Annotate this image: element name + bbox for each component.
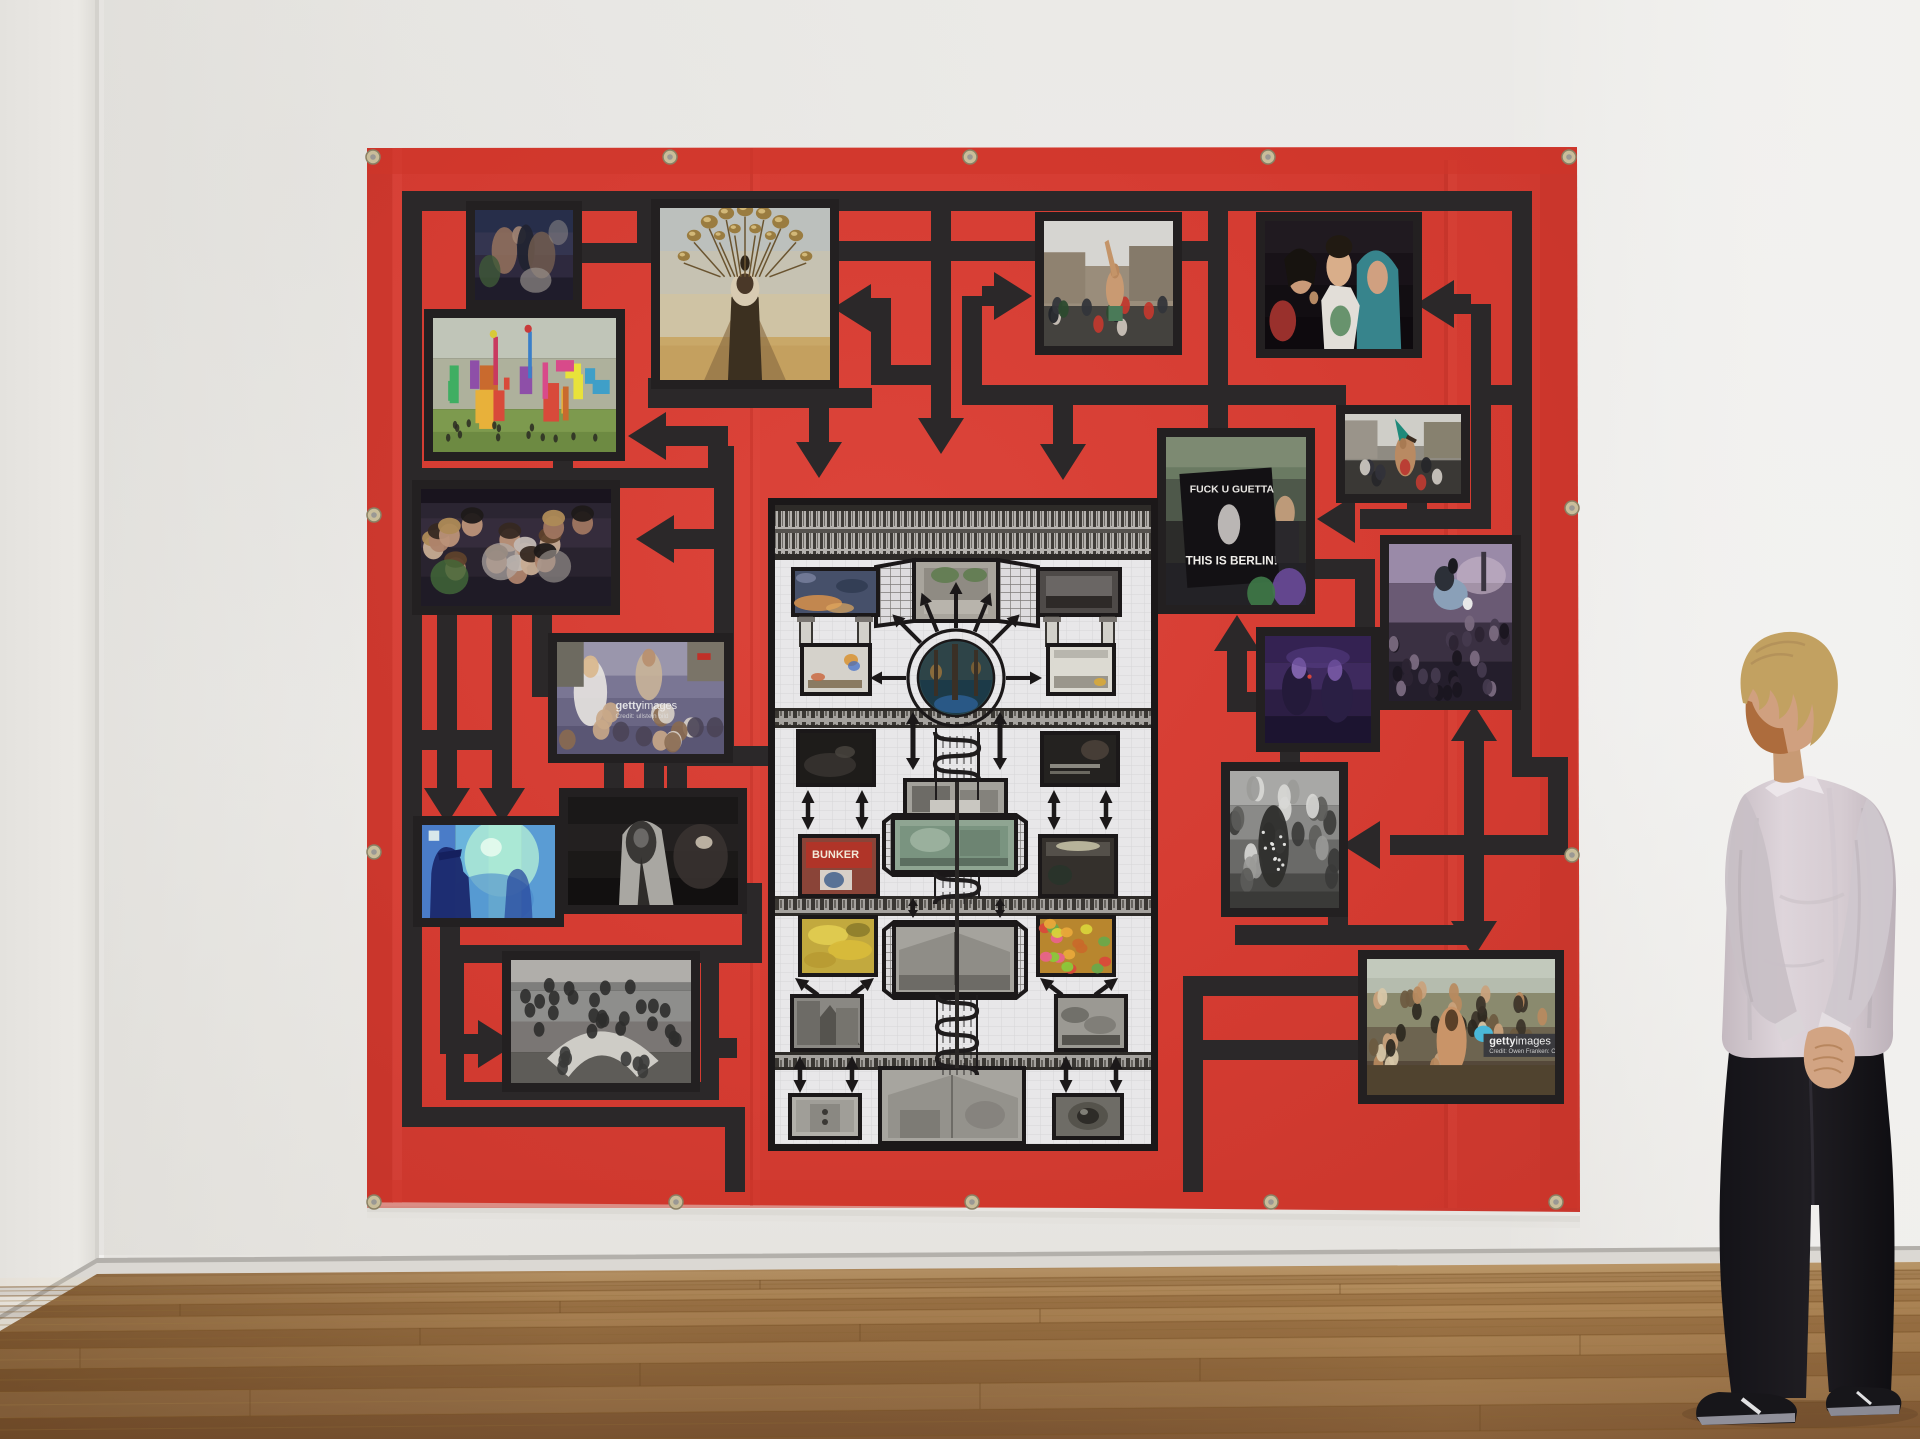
svg-text:gettyimages: gettyimages [615, 700, 677, 712]
svg-text:FUCK U GUETTA: FUCK U GUETTA [1190, 484, 1275, 495]
svg-text:gettyimages: gettyimages [1489, 1036, 1551, 1048]
svg-text:BUNKER: BUNKER [812, 849, 859, 861]
svg-text:THIS IS BERLIN!: THIS IS BERLIN! [1186, 555, 1278, 568]
svg-text:Credit: ullstein bild: Credit: ullstein bild [615, 713, 668, 720]
